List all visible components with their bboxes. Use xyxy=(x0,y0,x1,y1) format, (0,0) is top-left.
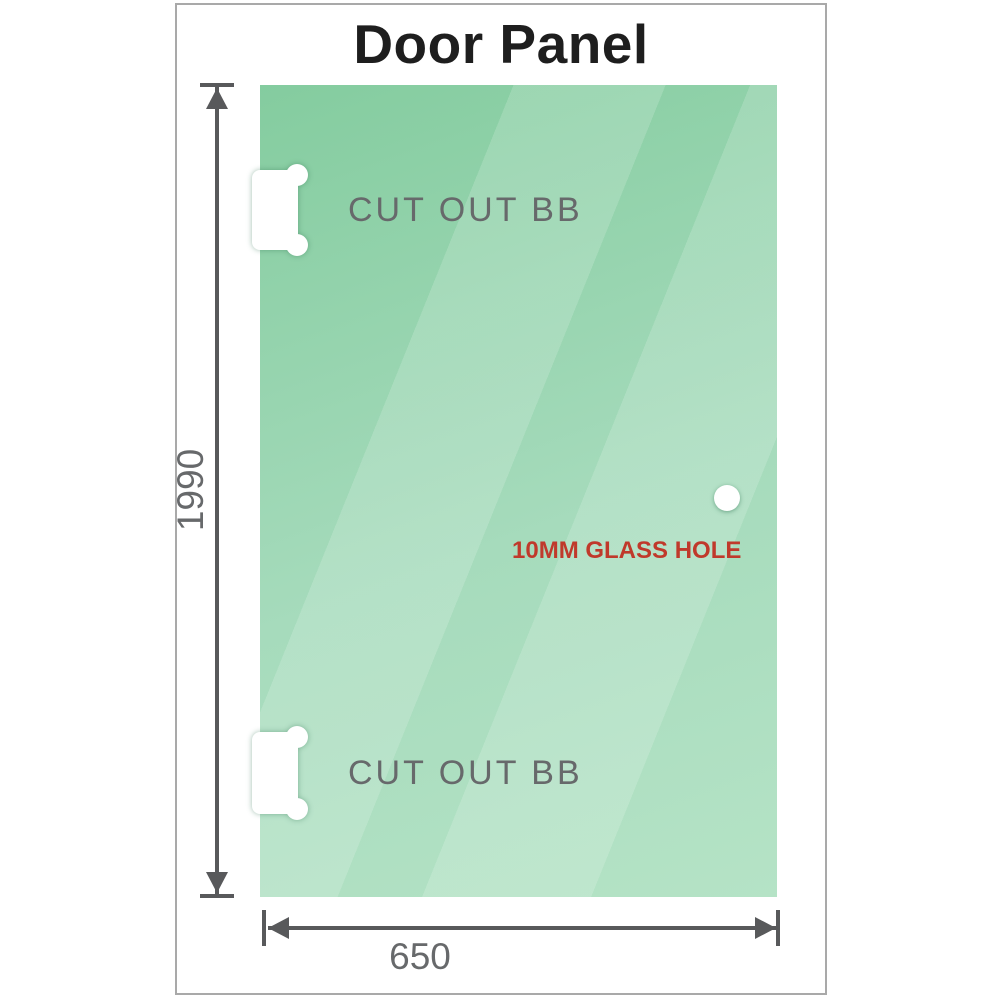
height-dimension-line xyxy=(215,87,219,897)
arrow-right-icon xyxy=(755,917,776,939)
diagram-title: Door Panel xyxy=(175,12,827,76)
hinge-cutout-bottom-icon xyxy=(252,732,298,814)
dimension-tick-right xyxy=(776,910,780,946)
width-dimension-label: 650 xyxy=(360,936,480,978)
hinge-cutout-top-icon xyxy=(252,170,298,250)
cutout-bump-icon xyxy=(286,798,308,820)
cutout-bottom-label: CUT OUT BB xyxy=(348,732,583,814)
door-panel-glass: CUT OUT BB CUT OUT BB 10MM GLASS HOLE xyxy=(260,85,777,897)
glass-hole-label: 10MM GLASS HOLE xyxy=(512,537,741,565)
cutout-bump-icon xyxy=(286,234,308,256)
cutout-bump-icon xyxy=(286,164,308,186)
dimension-tick-left xyxy=(262,910,266,946)
arrow-down-icon xyxy=(206,872,228,893)
cutout-top-label: CUT OUT BB xyxy=(348,170,583,250)
cutout-bump-icon xyxy=(286,726,308,748)
width-dimension-line xyxy=(268,926,778,930)
height-dimension-label: 1990 xyxy=(171,430,211,550)
glass-hole-icon xyxy=(714,485,740,511)
dimension-cap-bottom xyxy=(200,894,234,898)
